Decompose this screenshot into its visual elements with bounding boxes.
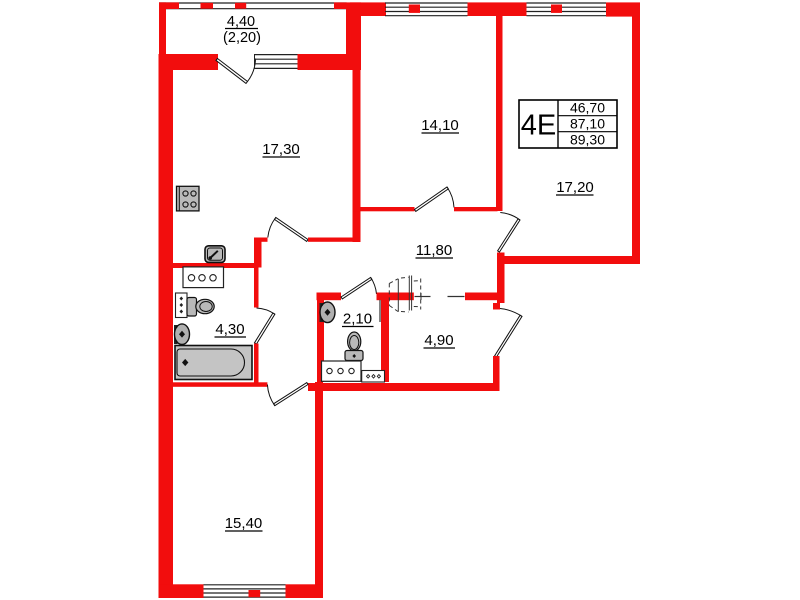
svg-text:4,30: 4,30 xyxy=(215,321,244,338)
svg-text:14,10: 14,10 xyxy=(421,117,459,134)
svg-text:17,20: 17,20 xyxy=(556,179,594,196)
svg-text:11,80: 11,80 xyxy=(416,242,452,259)
svg-text:87,10: 87,10 xyxy=(570,116,605,132)
svg-text:4E: 4E xyxy=(521,110,556,142)
svg-text:89,30: 89,30 xyxy=(570,132,605,148)
svg-text:15,40: 15,40 xyxy=(225,515,263,532)
svg-text:17,30: 17,30 xyxy=(262,141,300,158)
svg-text:4,40: 4,40 xyxy=(227,14,255,30)
svg-text:46,70: 46,70 xyxy=(570,100,605,116)
svg-text:4,90: 4,90 xyxy=(424,332,453,349)
svg-text:(2,20): (2,20) xyxy=(223,30,261,46)
svg-text:2,10: 2,10 xyxy=(343,311,372,328)
